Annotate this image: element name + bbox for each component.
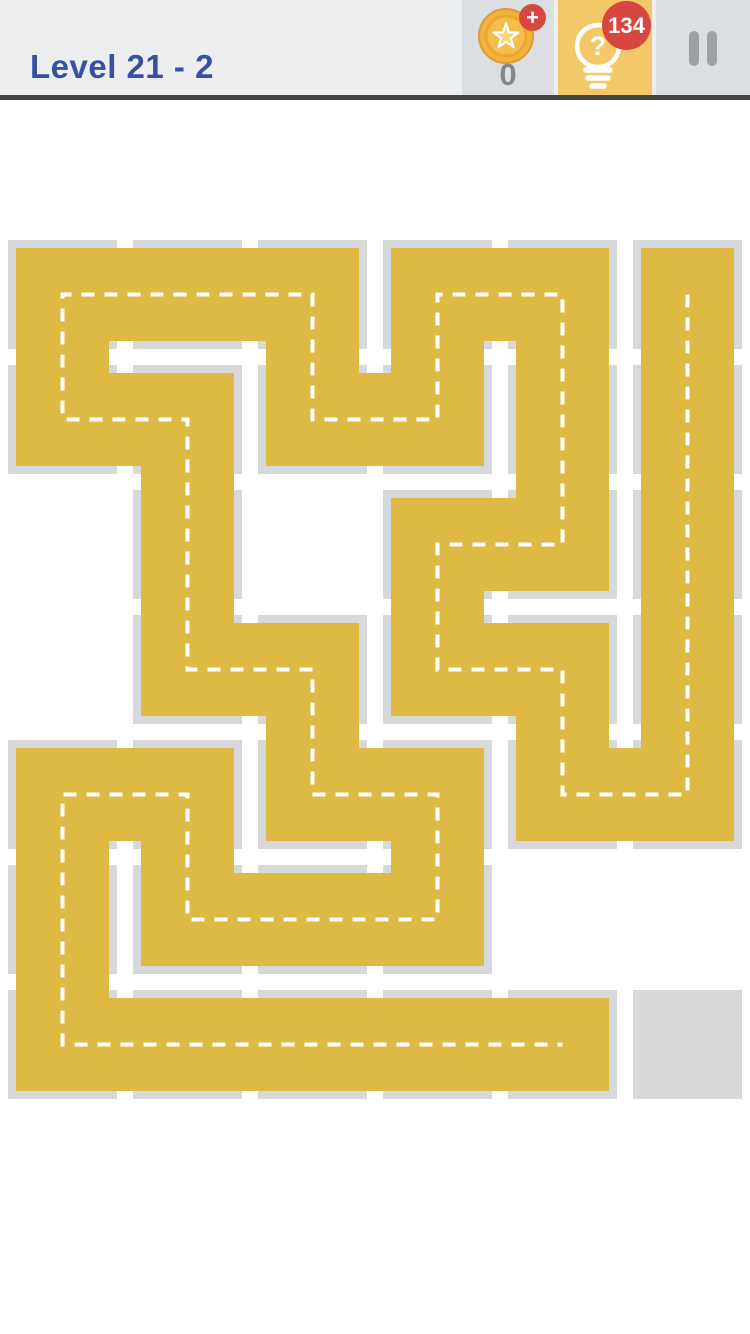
path-fill: [484, 623, 516, 716]
path-fill: [391, 841, 484, 873]
path-fill: [516, 716, 609, 748]
coin-count: 0: [462, 57, 554, 93]
hint-button[interactable]: ? 134: [558, 0, 652, 95]
path-fill: [391, 591, 484, 623]
path-fill: [484, 248, 516, 341]
path-fill: [16, 998, 109, 1091]
path-fill: [141, 498, 234, 591]
path-fill: [516, 623, 609, 716]
path-fill: [484, 998, 516, 1091]
path-fill: [16, 748, 109, 841]
path-fill: [16, 373, 109, 466]
path-fill: [641, 716, 734, 748]
path-fill: [266, 716, 359, 748]
header-divider: [0, 95, 750, 100]
path-fill: [391, 341, 484, 373]
path-fill: [141, 748, 234, 841]
path-fill: [234, 998, 266, 1091]
path-fill: [266, 373, 359, 466]
path-fill: [516, 341, 609, 373]
path-fill: [141, 373, 234, 466]
empty-board-cell[interactable]: [633, 990, 742, 1099]
path-fill: [234, 248, 266, 341]
path-fill: [141, 873, 234, 966]
path-fill: [516, 248, 609, 341]
path-fill: [266, 341, 359, 373]
path-fill: [516, 466, 609, 498]
coin-plus-badge[interactable]: +: [519, 4, 546, 31]
path-fill: [391, 998, 484, 1091]
path-fill: [516, 498, 609, 591]
path-fill: [641, 748, 734, 841]
path-fill: [234, 873, 266, 966]
path-fill: [609, 748, 641, 841]
coin-button[interactable]: + 0: [462, 0, 554, 95]
path-fill: [141, 998, 234, 1091]
path-fill: [484, 498, 516, 591]
path-fill: [391, 873, 484, 966]
path-fill: [266, 248, 359, 341]
path-fill: [391, 623, 484, 716]
path-fill: [141, 248, 234, 341]
path-fill: [391, 498, 484, 591]
path-fill: [266, 748, 359, 841]
path-fill: [141, 623, 234, 716]
path-fill: [266, 623, 359, 716]
pause-icon: [707, 31, 717, 66]
path-fill: [359, 748, 391, 841]
path-fill: [109, 748, 141, 841]
path-fill: [16, 873, 109, 966]
game-screen: Level 21 - 2 + 0 ? 134: [0, 0, 750, 1334]
path-fill: [141, 591, 234, 623]
puzzle-board[interactable]: [8, 240, 742, 1099]
path-fill: [516, 748, 609, 841]
header-bar: Level 21 - 2 + 0 ? 134: [0, 0, 750, 95]
path-fill: [16, 966, 109, 998]
path-fill: [641, 591, 734, 623]
path-fill: [641, 248, 734, 341]
path-fill: [109, 998, 141, 1091]
path-dash-line: [8, 240, 742, 1099]
path-fill: [109, 373, 141, 466]
path-fill: [641, 466, 734, 498]
path-fill: [391, 373, 484, 466]
path-fill: [141, 841, 234, 873]
level-title: Level 21 - 2: [30, 48, 214, 86]
path-fill: [391, 748, 484, 841]
path-fill: [266, 873, 359, 966]
path-fill: [234, 623, 266, 716]
path-fill: [16, 248, 109, 341]
path-fill: [359, 873, 391, 966]
path-fill: [641, 341, 734, 373]
path-fill: [16, 841, 109, 873]
hint-count-badge: 134: [602, 1, 651, 50]
pause-button[interactable]: [656, 0, 750, 95]
path-fill: [109, 248, 141, 341]
path-fill: [516, 998, 609, 1091]
path-fill: [391, 248, 484, 341]
path-fill: [641, 373, 734, 466]
path-fill: [641, 498, 734, 591]
path-fill: [641, 623, 734, 716]
path-fill: [516, 373, 609, 466]
path-fill: [359, 998, 391, 1091]
path-fill: [16, 341, 109, 373]
path-fill: [266, 998, 359, 1091]
path-fill: [141, 466, 234, 498]
pause-icon: [689, 31, 699, 66]
path-fill: [359, 373, 391, 466]
